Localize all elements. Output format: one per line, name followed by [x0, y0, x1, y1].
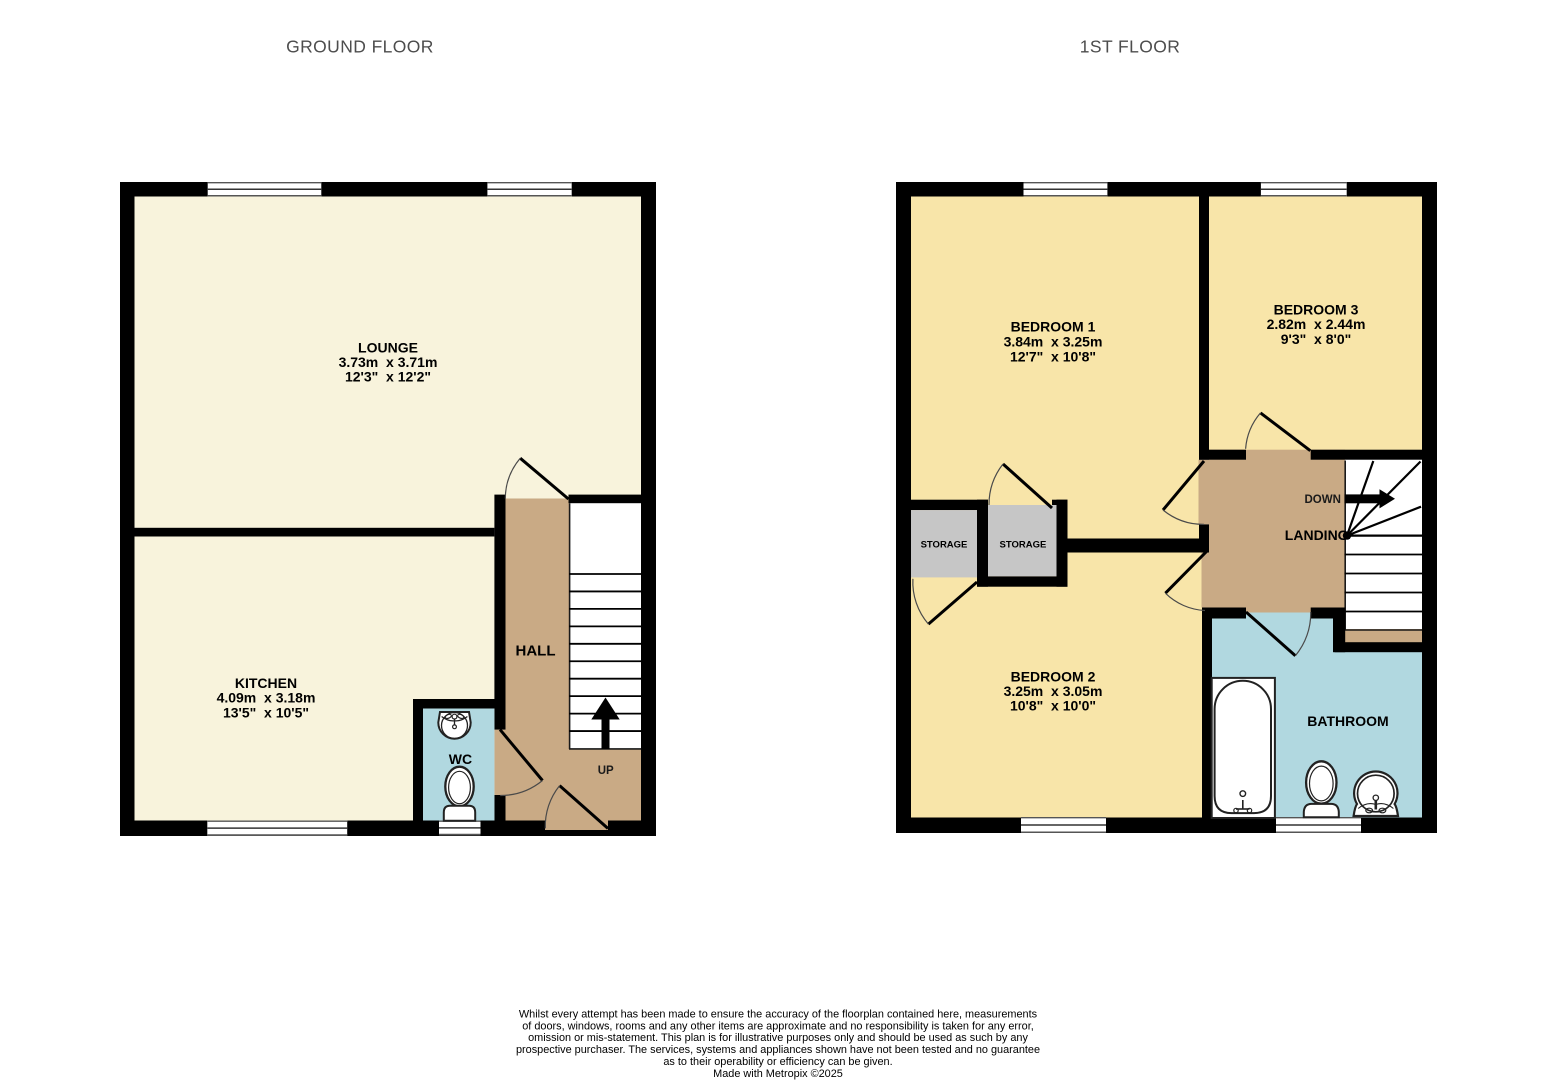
svg-text:STORAGE: STORAGE: [921, 540, 968, 551]
svg-text:omission or mis-statement. Thi: omission or mis-statement. This plan is …: [528, 1032, 1028, 1044]
svg-text:LANDING: LANDING: [1285, 527, 1349, 543]
svg-text:1ST FLOOR: 1ST FLOOR: [1080, 37, 1181, 57]
svg-text:BEDROOM 1: BEDROOM 1: [1011, 319, 1096, 335]
svg-text:WC: WC: [449, 751, 472, 767]
svg-text:10'8" x 10'0": 10'8" x 10'0": [1010, 698, 1096, 714]
svg-text:HALL: HALL: [516, 642, 556, 659]
svg-text:3.84m x 3.25m: 3.84m x 3.25m: [1004, 334, 1103, 350]
svg-text:Whilst every attempt has been: Whilst every attempt has been made to en…: [519, 1008, 1038, 1020]
svg-text:12'3" x 12'2": 12'3" x 12'2": [345, 368, 431, 384]
svg-text:13'5" x 10'5": 13'5" x 10'5": [223, 705, 309, 721]
svg-text:3.25m x 3.05m: 3.25m x 3.05m: [1004, 683, 1103, 699]
svg-text:of doors, windows, rooms and a: of doors, windows, rooms and any other i…: [522, 1020, 1034, 1032]
svg-text:as to their operability or eff: as to their operability or efficiency ca…: [663, 1056, 892, 1068]
svg-text:KITCHEN: KITCHEN: [235, 675, 297, 691]
svg-text:4.09m x 3.18m: 4.09m x 3.18m: [217, 690, 316, 706]
svg-text:BEDROOM 3: BEDROOM 3: [1274, 301, 1359, 317]
svg-text:DOWN: DOWN: [1304, 494, 1340, 506]
svg-text:BEDROOM 2: BEDROOM 2: [1011, 668, 1096, 684]
svg-text:GROUND FLOOR: GROUND FLOOR: [286, 37, 434, 57]
svg-text:Made with Metropix ©2025: Made with Metropix ©2025: [713, 1068, 843, 1080]
svg-text:9'3" x 8'0": 9'3" x 8'0": [1281, 331, 1352, 347]
svg-text:2.82m x 2.44m: 2.82m x 2.44m: [1267, 316, 1366, 332]
svg-text:STORAGE: STORAGE: [999, 540, 1046, 551]
svg-text:12'7" x 10'8": 12'7" x 10'8": [1010, 348, 1096, 364]
svg-text:prospective purchaser. The ser: prospective purchaser. The services, sys…: [516, 1044, 1040, 1056]
svg-text:UP: UP: [598, 765, 614, 777]
svg-text:BATHROOM: BATHROOM: [1307, 713, 1388, 729]
